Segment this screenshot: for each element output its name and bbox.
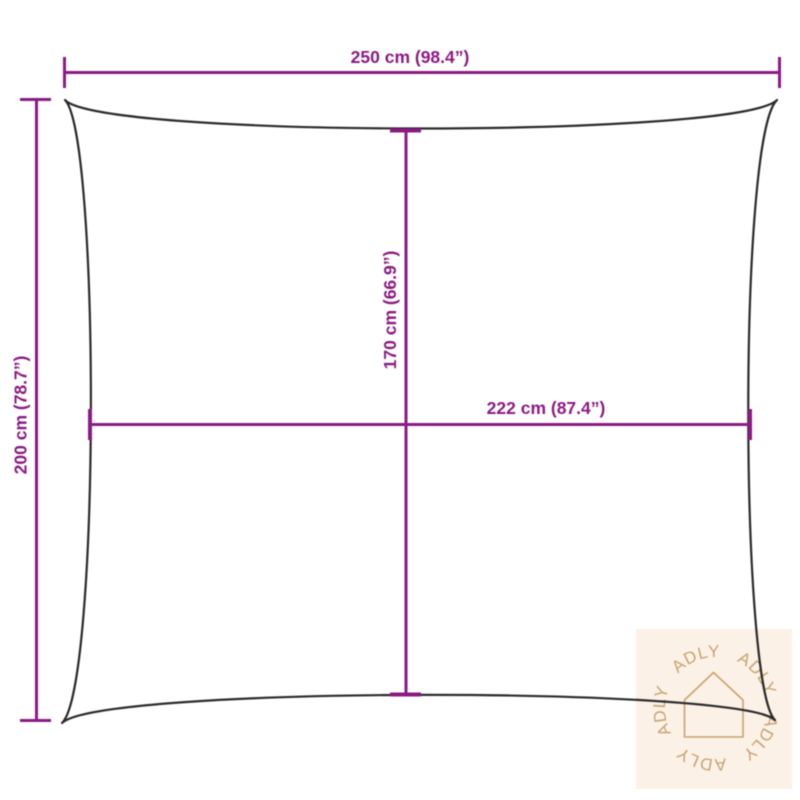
svg-text:170 cm (66.9”): 170 cm (66.9”) <box>380 251 400 370</box>
svg-text:222 cm (87.4”): 222 cm (87.4”) <box>487 398 606 418</box>
svg-text:250 cm (98.4”): 250 cm (98.4”) <box>351 47 470 67</box>
svg-text:200 cm (78.7”): 200 cm (78.7”) <box>11 356 31 475</box>
